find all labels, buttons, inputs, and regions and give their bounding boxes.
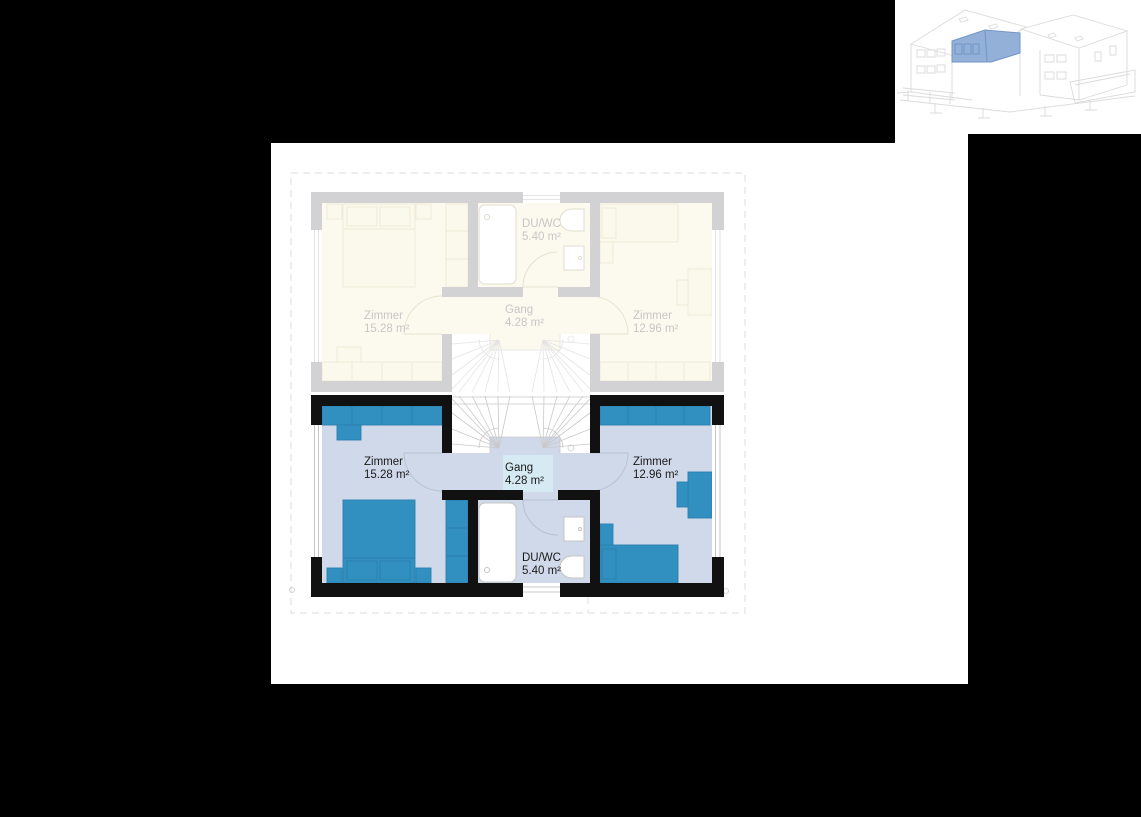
faded-label-duwc-area: 5.40 m² <box>522 231 561 243</box>
faded-wardrobe-left-ext <box>337 347 361 362</box>
right-block-roof <box>1021 15 1127 48</box>
label-duwc-area: 5.40 m² <box>522 565 561 577</box>
pillow-right <box>602 549 616 579</box>
wall-bottom-left <box>311 583 523 597</box>
active-unit-plan: Zimmer 15.28 m² Gang 4.28 m² Zimmer 12.9… <box>311 395 724 597</box>
faded-wall-left-lower <box>311 362 322 392</box>
floor-plan-panel: Zimmer 15.28 m² Gang 4.28 m² Zimmer 12.9… <box>271 143 968 684</box>
label-zimmer-left-name: Zimmer <box>364 456 403 468</box>
adjacent-unit-plan: Zimmer 15.28 m² Gang 4.28 m² Zimmer 12.9… <box>311 192 724 392</box>
faded-label-zimmer-right-area: 12.96 m² <box>633 323 679 335</box>
faded-faucet <box>579 257 582 260</box>
wall-left-lower <box>311 557 322 597</box>
wall-top-right <box>590 395 724 406</box>
window-right <box>712 425 724 557</box>
wall-duwc-a <box>442 490 523 500</box>
faded-label-zimmer-left-area: 15.28 m² <box>364 323 410 335</box>
desk <box>688 472 712 518</box>
pillow-2 <box>380 561 410 580</box>
wall-stair-left <box>442 395 452 453</box>
wardrobe-right <box>600 406 710 425</box>
faded-desk <box>688 269 712 315</box>
right-block-facade <box>1040 31 1127 100</box>
floor-plan: Zimmer 15.28 m² Gang 4.28 m² Zimmer 12.9… <box>271 143 968 684</box>
faded-wall-duwc-b <box>558 287 590 297</box>
faded-window-left <box>311 230 322 362</box>
faded-wall-bottom-right <box>590 381 724 392</box>
wall-duwc-right <box>590 490 600 583</box>
closet-column <box>446 500 468 583</box>
building-wireframe <box>897 10 1135 118</box>
faded-wall-right-upper <box>712 192 724 230</box>
faded-label-gang-name: Gang <box>505 304 533 316</box>
wall-bottom-right <box>560 583 724 597</box>
left-block-balcony <box>897 88 955 104</box>
faded-wall-duwc-a <box>442 287 523 297</box>
faded-closet-column <box>446 204 468 287</box>
wall-duwc-b <box>558 490 590 500</box>
wardrobe-left-ext <box>337 425 361 440</box>
nightstand-1 <box>327 568 342 583</box>
wall-right-upper <box>712 395 724 425</box>
faded-pillow-2 <box>380 207 410 226</box>
faded-pillow-1 <box>347 207 377 226</box>
wall-top-left <box>311 395 452 406</box>
carport <box>1070 70 1135 103</box>
building-overview-panel <box>895 0 1141 134</box>
corner-marker-right <box>724 589 729 594</box>
toilet <box>560 556 584 578</box>
nightstand-2 <box>416 568 431 583</box>
faded-label-gang-area: 4.28 m² <box>505 317 544 329</box>
pillow-1 <box>347 561 377 580</box>
building-overview-sketch <box>895 0 1141 134</box>
nightstand-right <box>600 524 613 545</box>
faucet <box>579 528 582 531</box>
wall-right-lower <box>712 557 724 597</box>
faded-nightstand-2 <box>416 204 431 219</box>
label-gang-name: Gang <box>505 462 533 474</box>
faded-label-zimmer-left-name: Zimmer <box>364 310 403 322</box>
faded-wall-top-right <box>560 192 724 203</box>
faded-wall-stair-left <box>442 334 452 392</box>
faded-label-duwc-name: DU/WC <box>522 218 561 230</box>
wall-left-upper <box>311 395 322 425</box>
faded-window-top <box>523 192 560 203</box>
faded-wall-right-lower <box>712 362 724 392</box>
faded-wall-left-upper <box>311 192 322 230</box>
label-zimmer-left-area: 15.28 m² <box>364 469 410 481</box>
faded-wall-duwc-left <box>468 192 478 297</box>
faded-wall-top-left <box>311 192 523 203</box>
wall-stair-right <box>590 395 600 453</box>
label-duwc-name: DU/WC <box>522 552 561 564</box>
faded-wall-duwc-right <box>590 203 600 297</box>
window-left <box>311 425 322 557</box>
faded-toilet <box>560 209 584 231</box>
wall-duwc-left <box>468 490 478 597</box>
label-zimmer-right-name: Zimmer <box>633 456 672 468</box>
chair <box>677 482 688 507</box>
label-gang-area: 4.28 m² <box>505 475 544 487</box>
label-zimmer-right-area: 12.96 m² <box>633 469 679 481</box>
screenshot-canvas: Zimmer 15.28 m² Gang 4.28 m² Zimmer 12.9… <box>0 0 1141 817</box>
window-bottom <box>523 583 560 597</box>
ground-line <box>900 96 1135 118</box>
faded-wardrobe-right <box>600 362 710 381</box>
faded-wall-stair-right <box>590 334 600 392</box>
highlighted-unit <box>952 30 1020 62</box>
faded-bathtub-drain <box>485 215 490 220</box>
bathtub-drain <box>485 568 490 573</box>
faded-window-right <box>712 230 724 362</box>
faded-nightstand-right <box>600 242 613 263</box>
faded-nightstand-1 <box>327 204 342 219</box>
faded-chair <box>677 280 688 305</box>
faded-wall-bottom-left <box>311 381 452 392</box>
faded-label-zimmer-right-name: Zimmer <box>633 310 672 322</box>
faded-pillow-right <box>602 208 616 238</box>
corner-marker-left <box>290 588 295 593</box>
